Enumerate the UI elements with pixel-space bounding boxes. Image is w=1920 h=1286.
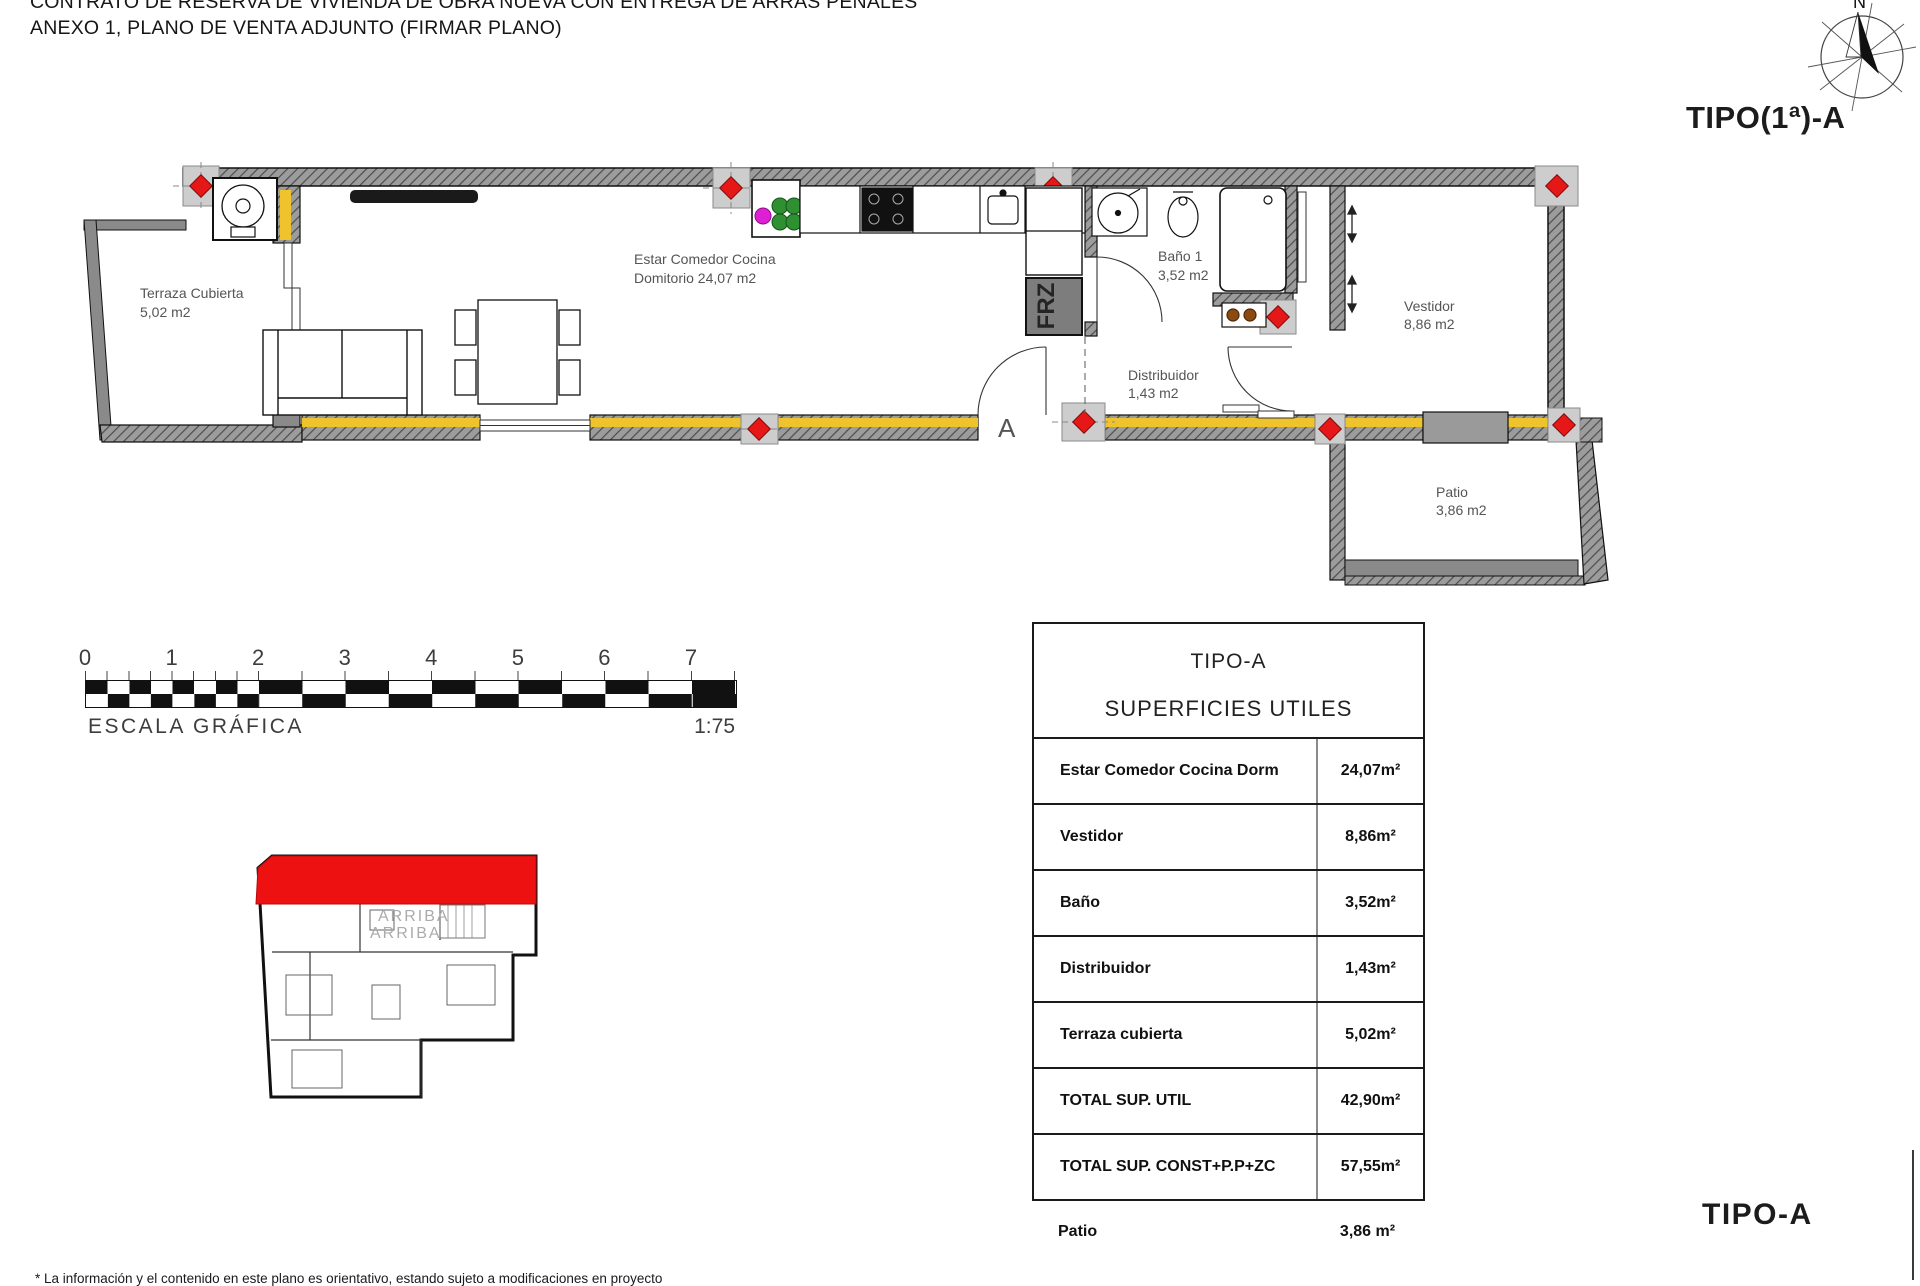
row-label: Estar Comedor Cocina Dorm <box>1034 739 1318 803</box>
room-label-terraza: Terraza Cubierta <box>140 285 244 301</box>
surfaces-table: TIPO-A SUPERFICIES UTILES Estar Comedor … <box>1032 622 1425 1201</box>
sliding-door <box>1298 192 1306 282</box>
sofa-icon <box>263 330 422 415</box>
scale-tick-2: 2 <box>245 645 271 671</box>
key-plan-arriba-2: ARRIBA <box>370 925 442 942</box>
pillar-marker <box>1548 408 1580 442</box>
plan-type-label: TIPO(1ª)-A <box>1686 100 1845 136</box>
row-value: 42,90m² <box>1318 1092 1423 1110</box>
room-area-patio: 3,86 m2 <box>1436 502 1487 518</box>
row-label: Distribuidor <box>1034 937 1318 1001</box>
plan-type-label-bottom: TIPO-A <box>1702 1198 1813 1232</box>
section-marker-a: A <box>998 413 1016 443</box>
table-title: TIPO-A <box>1034 624 1423 674</box>
table-row: Vestidor 8,86m² <box>1034 805 1423 871</box>
key-plan-highlight <box>256 856 536 904</box>
row-value: 3,86 m² <box>1314 1223 1421 1241</box>
sliding-door <box>284 243 292 288</box>
room-label-distribuidor: Distribuidor <box>1128 367 1199 383</box>
table-row: Terraza cubierta 5,02m² <box>1034 1003 1423 1069</box>
scale-subticks <box>258 671 736 680</box>
scale-bar <box>85 680 737 708</box>
row-label: Terraza cubierta <box>1034 1003 1318 1067</box>
pillar-marker <box>1535 166 1578 206</box>
cooktop-icon <box>862 188 912 231</box>
scale-tick-5: 5 <box>505 645 531 671</box>
document-title-line1: CONTRATO DE RESERVA DE VIVIENDA DE OBRA … <box>30 0 917 15</box>
row-value: 5,02m² <box>1318 1026 1423 1044</box>
room-area-estar: Domitorio 24,07 m2 <box>634 270 756 286</box>
freezer-label: FRZ <box>1033 283 1060 330</box>
document-title: CONTRATO DE RESERVA DE VIVIENDA DE OBRA … <box>30 0 917 41</box>
room-label-patio: Patio <box>1436 484 1468 500</box>
scale-tick-1: 1 <box>159 645 185 671</box>
patio-window <box>1423 412 1508 443</box>
floor-plan-canvas: N <box>0 0 1920 1280</box>
row-label: Vestidor <box>1034 805 1318 869</box>
scale-caption: ESCALA GRÁFICA <box>88 715 304 739</box>
toilet-icon <box>1168 192 1198 237</box>
room-label-vestidor: Vestidor <box>1404 298 1455 314</box>
table-row: TOTAL SUP. UTIL 42,90m² <box>1034 1069 1423 1135</box>
row-value: 3,52m² <box>1318 894 1423 912</box>
sheet-border-line <box>1912 1150 1914 1280</box>
key-plan: ARRIBA ARRIBA <box>256 856 536 1097</box>
plants-icon <box>752 180 802 237</box>
row-value: 8,86m² <box>1318 828 1423 846</box>
disclaimer-note: * La información y el contenido en este … <box>35 1271 662 1286</box>
graphic-scale: 0 1 2 3 4 5 6 7 ESCALA GRÁFICA 1:75 <box>80 645 780 745</box>
row-value: 1,43m² <box>1318 960 1423 978</box>
table-row: Baño 3,52m² <box>1034 871 1423 937</box>
compass-north-label: N <box>1853 0 1866 12</box>
surfaces-table-header: TIPO-A SUPERFICIES UTILES <box>1034 624 1423 739</box>
row-label: Patio <box>1032 1212 1314 1252</box>
water-heater-icon <box>213 178 277 240</box>
scale-tick-0: 0 <box>72 645 98 671</box>
row-label: TOTAL SUP. CONST+P.P+ZC <box>1034 1135 1318 1199</box>
row-label: TOTAL SUP. UTIL <box>1034 1069 1318 1133</box>
dining-table-icon <box>455 300 580 404</box>
shower-icon <box>1220 188 1286 291</box>
pillar-marker <box>1315 414 1345 444</box>
room-label-estar: Estar Comedor Cocina <box>634 251 776 267</box>
row-value: 57,55m² <box>1318 1158 1423 1176</box>
compass-rose: N <box>1808 0 1916 111</box>
scale-subticks <box>85 671 259 680</box>
tv-icon <box>350 190 478 203</box>
scale-tick-7: 7 <box>678 645 704 671</box>
table-row: TOTAL SUP. CONST+P.P+ZC 57,55m² <box>1034 1135 1423 1199</box>
scale-tick-4: 4 <box>418 645 444 671</box>
scale-tick-6: 6 <box>591 645 617 671</box>
table-subtitle: SUPERFICIES UTILES <box>1034 674 1423 722</box>
row-label: Baño <box>1034 871 1318 935</box>
bottom-wall <box>302 412 1548 443</box>
scale-ratio: 1:75 <box>655 715 735 739</box>
room-area-bano: 3,52 m2 <box>1158 267 1209 283</box>
sliding-door <box>1258 411 1294 418</box>
room-area-vestidor: 8,86 m2 <box>1404 316 1455 332</box>
sliding-door <box>292 288 300 333</box>
sliding-door <box>1223 405 1259 412</box>
key-plan-arriba-1: ARRIBA <box>378 908 450 925</box>
patio-extra-row: Patio 3,86 m² <box>1032 1212 1421 1252</box>
room-label-bano: Baño 1 <box>1158 248 1203 264</box>
sliding-door-arrow-icon <box>1348 206 1356 312</box>
room-area-terraza: 5,02 m2 <box>140 304 191 320</box>
row-value: 24,07m² <box>1318 762 1423 780</box>
scale-tick-3: 3 <box>332 645 358 671</box>
table-row: Distribuidor 1,43m² <box>1034 937 1423 1003</box>
document-title-line2: ANEXO 1, PLANO DE VENTA ADJUNTO (FIRMAR … <box>30 15 917 41</box>
table-row: Estar Comedor Cocina Dorm 24,07m² <box>1034 739 1423 805</box>
room-area-distribuidor: 1,43 m2 <box>1128 385 1179 401</box>
